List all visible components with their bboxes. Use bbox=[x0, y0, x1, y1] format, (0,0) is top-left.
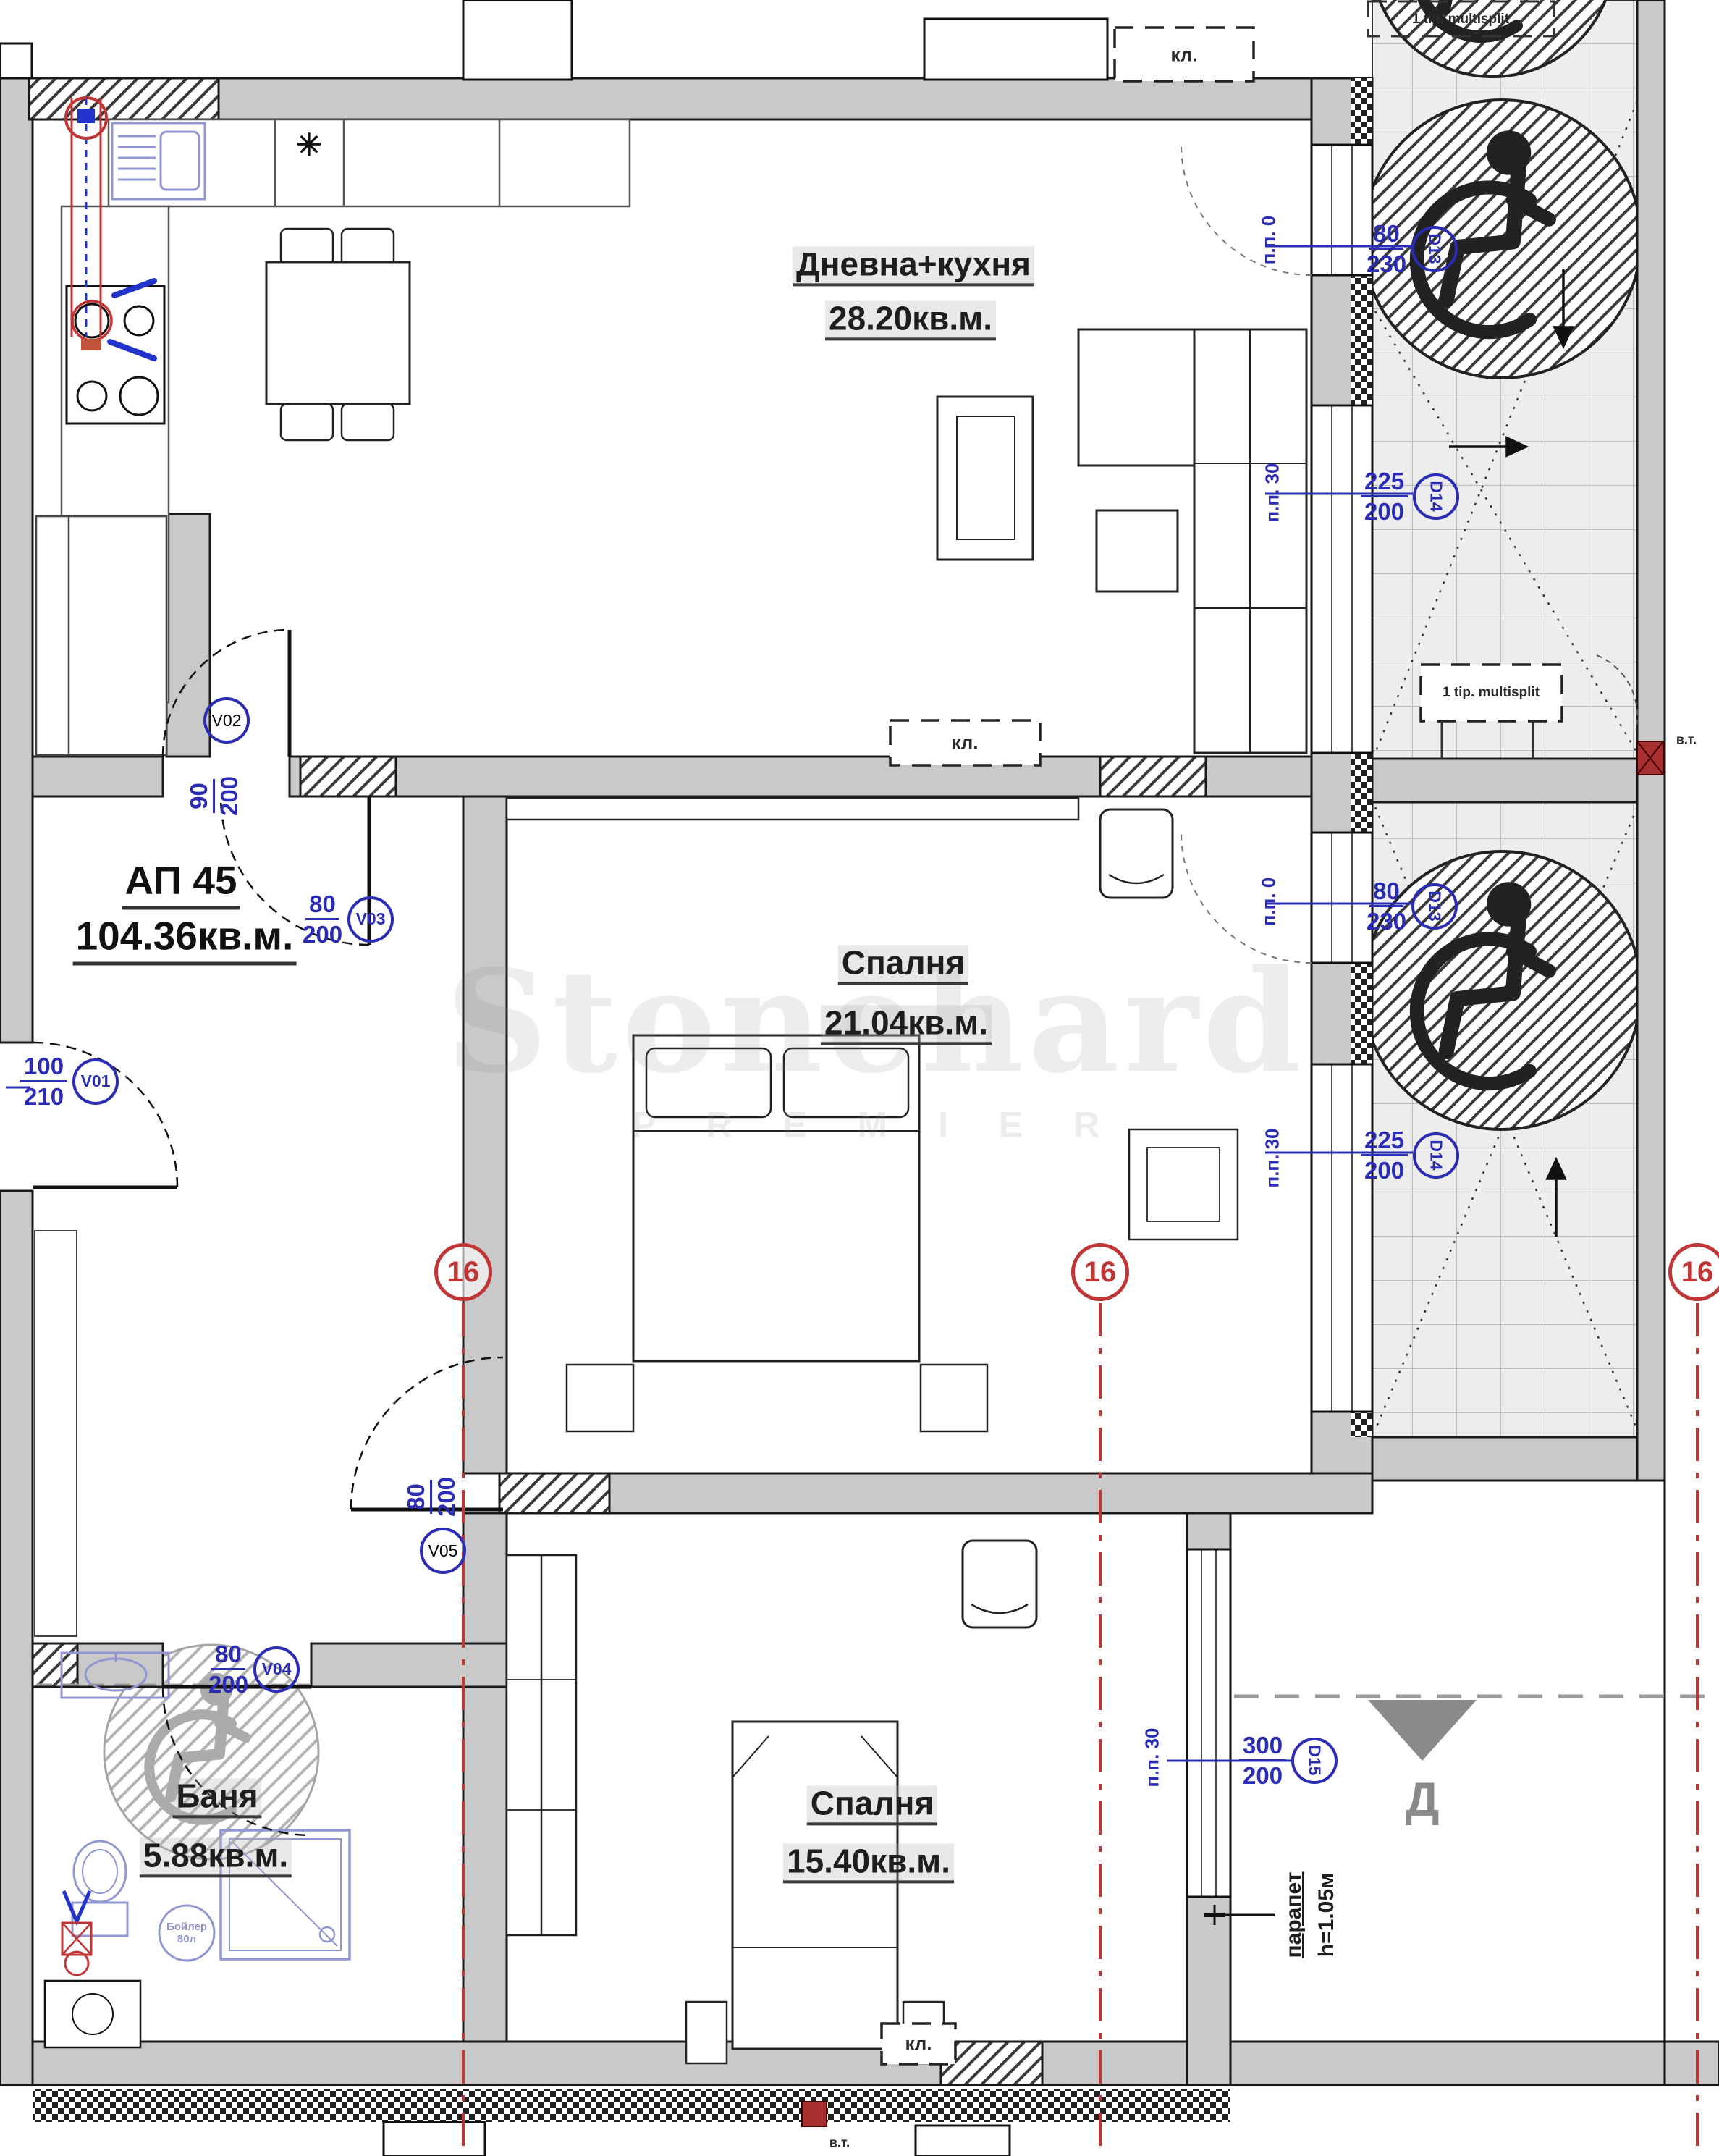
bedroom2-window-dimension: 300 200 D15 bbox=[1239, 1733, 1338, 1787]
bedroom1-door-tag-circle: V03 bbox=[347, 896, 394, 943]
bedroom2-wardrobe bbox=[507, 1555, 576, 1935]
balcony-window1-size: 225 200 bbox=[1361, 469, 1408, 523]
direction-letter: Д bbox=[1405, 1772, 1439, 1827]
balcony-window2-size: 225 200 bbox=[1361, 1128, 1408, 1182]
bedroom2-chair bbox=[963, 1541, 1036, 1627]
living-door-tag-circle: V02 bbox=[203, 697, 250, 744]
living-room-area: 28.20кв.м. bbox=[825, 300, 996, 340]
bedroom2-door-tag-circle: V05 bbox=[420, 1528, 466, 1574]
bedroom2-window-frame bbox=[1187, 1549, 1230, 1897]
balcony-window-1-frame bbox=[1312, 405, 1372, 753]
floor-plan-page: Stonehard P R E M I E R Дневна+кухня 28.… bbox=[0, 0, 1719, 2156]
living-room-name: Дневна+кухня bbox=[793, 246, 1034, 286]
sill-label-pp30-2: п.п. 30 bbox=[1262, 1115, 1284, 1202]
washing-machine bbox=[45, 1981, 140, 2047]
balcony-door2-dimension: 80 230 D13 bbox=[1367, 879, 1458, 933]
bathroom-door-size: 80 200 bbox=[208, 1642, 248, 1696]
balcony-door-1-frame bbox=[1312, 145, 1372, 275]
living-door-dimension: 90 200 bbox=[187, 776, 241, 816]
entrance-tag-circle: V01 bbox=[72, 1058, 119, 1105]
section-marker-left: 16 bbox=[434, 1243, 492, 1301]
direction-triangle bbox=[1368, 1700, 1477, 1761]
balcony-window2-dimension: 225 200 D14 bbox=[1361, 1128, 1459, 1182]
armchair bbox=[937, 397, 1033, 560]
tv-shelf bbox=[507, 798, 1078, 820]
bedroom2-window-tag-circle: D15 bbox=[1291, 1738, 1338, 1784]
sill-label-pp30-1: п.п. 30 bbox=[1262, 450, 1284, 536]
water-point-label-bottom: в.т. bbox=[829, 2136, 850, 2151]
bedroom2-door-dimension: 80 200 bbox=[404, 1477, 458, 1517]
apartment-area: 104.36кв.м. bbox=[73, 913, 297, 966]
living-door-size: 90 200 bbox=[187, 776, 241, 816]
bedroom1-dresser bbox=[1129, 1129, 1238, 1239]
parapet-line1: парапет bbox=[1277, 1835, 1310, 1995]
water-point-label-right: в.т. bbox=[1676, 733, 1697, 748]
parapet-leader bbox=[1204, 1905, 1275, 1925]
balcony-door1-dimension: 80 230 D13 bbox=[1367, 222, 1458, 276]
hall-closet bbox=[36, 516, 166, 755]
bathroom-door-dimension: 80 200 V04 bbox=[208, 1642, 300, 1696]
balcony-door1-tag-circle: D13 bbox=[1411, 226, 1458, 272]
balcony-window2-tag-circle: D14 bbox=[1413, 1132, 1459, 1179]
bedroom1-door-size: 80 200 bbox=[303, 892, 342, 946]
entrance-size: 100 210 bbox=[20, 1054, 67, 1108]
dining-set bbox=[266, 229, 410, 440]
balcony-window-2-frame bbox=[1312, 1064, 1372, 1412]
bedroom2-name: Спалня bbox=[807, 1785, 937, 1825]
bathroom-name: Баня bbox=[172, 1778, 261, 1818]
ac-unit-label-top: кл. bbox=[1170, 44, 1197, 67]
bedroom1-name: Спалня bbox=[838, 945, 968, 985]
multisplit-label-top: 1 tip. multisplit bbox=[1412, 12, 1509, 28]
toilet bbox=[72, 1841, 127, 1936]
balcony-door2-tag-circle: D13 bbox=[1411, 883, 1458, 930]
bedroom1-chair bbox=[1100, 809, 1173, 898]
balcony-door2-size: 80 230 bbox=[1367, 879, 1406, 933]
sill-label-pp0-2: п.п. 0 bbox=[1258, 859, 1280, 946]
sill-label-pp0-1: п.п. 0 bbox=[1258, 197, 1280, 284]
coffee-table bbox=[1097, 510, 1178, 591]
bedroom1-area: 21.04кв.м. bbox=[821, 1005, 992, 1045]
bedroom2-window-size: 300 200 bbox=[1239, 1733, 1286, 1787]
boiler-line1: Бойлер bbox=[166, 1921, 207, 1933]
sill-label-pp30-3: п.п. 30 bbox=[1141, 1714, 1164, 1801]
boiler-label: Бойлер 80л bbox=[166, 1921, 207, 1946]
balcony-window1-dimension: 225 200 D14 bbox=[1361, 469, 1459, 523]
multisplit-label: 1 tip. multisplit bbox=[1443, 685, 1540, 701]
boiler-line2: 80л bbox=[166, 1933, 207, 1945]
balcony-window1-tag-circle: D14 bbox=[1413, 473, 1459, 520]
bathroom-area: 5.88кв.м. bbox=[140, 1837, 292, 1877]
ac-unit-label-middle: кл. bbox=[951, 732, 978, 754]
kitchen-star-symbol: ✳ bbox=[296, 127, 321, 163]
entrance-dimension: 100 210 V01 bbox=[20, 1054, 119, 1108]
hall-cabinet bbox=[35, 1231, 77, 1636]
parapet-note: парапет h=1.05м bbox=[1277, 1835, 1343, 1995]
ac-unit-label-bottom: кл. bbox=[905, 2033, 932, 2055]
bedroom2-area: 15.40кв.м. bbox=[783, 1843, 954, 1883]
watermark-sub: P R E M I E R bbox=[446, 1104, 1306, 1146]
bathroom-door-tag-circle: V04 bbox=[253, 1646, 300, 1693]
bedroom2-bed bbox=[686, 1722, 944, 2063]
balcony-door1-size: 80 230 bbox=[1367, 222, 1406, 276]
balcony-door-2-frame bbox=[1312, 833, 1372, 963]
bedroom1-door-dimension: 80 200 V03 bbox=[303, 892, 394, 946]
bedroom2-door-size: 80 200 bbox=[404, 1477, 458, 1517]
apartment-number: АП 45 bbox=[122, 857, 240, 910]
section-marker-right: 16 bbox=[1668, 1243, 1719, 1301]
parapet-line2: h=1.05м bbox=[1310, 1835, 1343, 1995]
section-marker-middle: 16 bbox=[1071, 1243, 1129, 1301]
